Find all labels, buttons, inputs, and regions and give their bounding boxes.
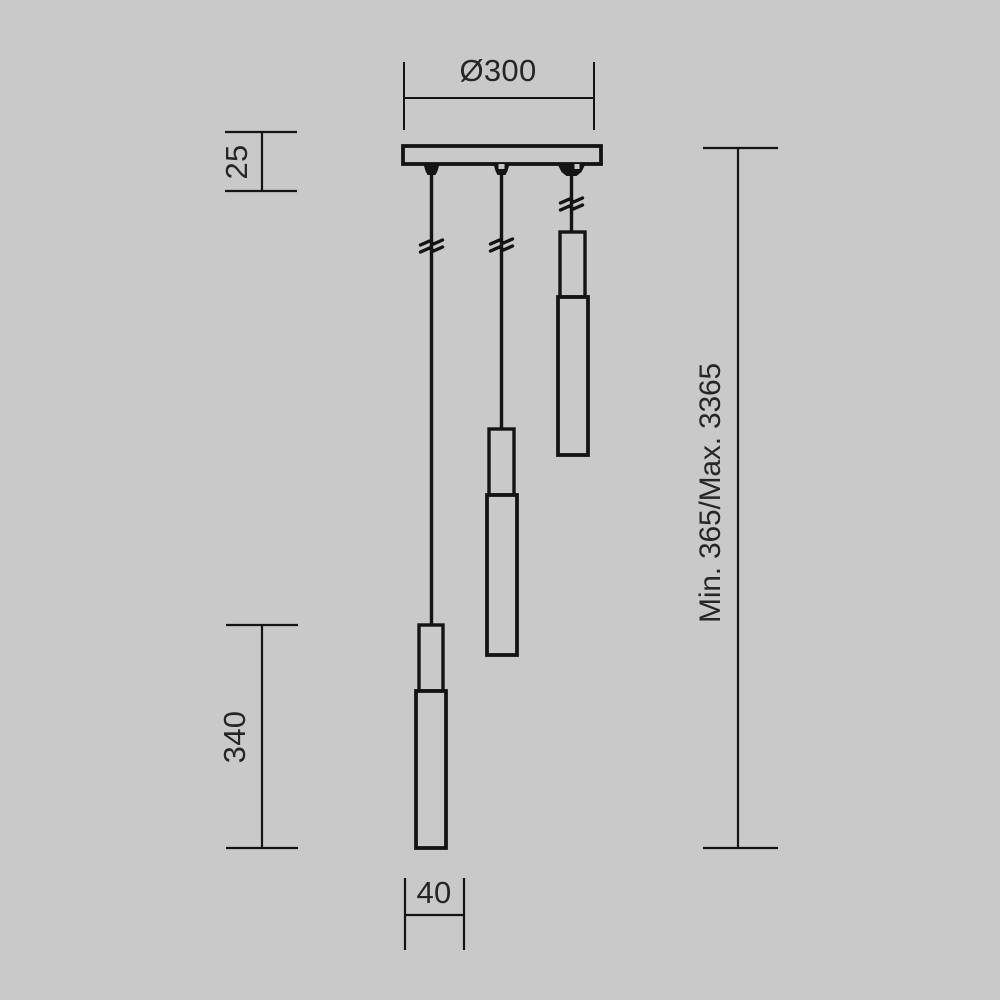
gland-notch <box>575 164 580 169</box>
canopy-diameter-label: Ø300 <box>459 53 536 88</box>
pendant-upper-cylinder <box>489 429 514 495</box>
gland-notch <box>499 164 505 169</box>
pendant-assembly-right <box>558 163 589 455</box>
pendant-assembly-middle <box>487 163 517 655</box>
dimension-height-range: Min. 365/Max. 3365 <box>694 148 778 848</box>
pendant-lower-cylinder <box>558 297 588 455</box>
cable-gland <box>558 164 586 176</box>
height-range-label: Min. 365/Max. 3365 <box>694 363 727 623</box>
pendant-lower-cylinder <box>416 691 446 848</box>
dimension-pendant-length: 340 <box>217 625 298 848</box>
cable-break-mark <box>561 205 583 210</box>
cable-break-mark <box>491 246 513 251</box>
pendant-width-label: 40 <box>416 875 451 910</box>
pendant-lower-cylinder <box>487 495 517 655</box>
cable-break-mark <box>421 247 443 252</box>
cable-gland <box>424 164 440 175</box>
pendant-upper-cylinder <box>560 232 585 297</box>
dimension-canopy-thickness: 25 <box>219 132 297 191</box>
pendant-length-label: 340 <box>217 711 252 764</box>
dimension-canopy-diameter: Ø300 <box>404 53 594 130</box>
dimension-pendant-width: 40 <box>405 875 464 950</box>
pendant-assembly-left <box>416 163 446 848</box>
cable-break-mark <box>491 239 513 244</box>
canopy-thickness-label: 25 <box>219 144 254 179</box>
cable-break-mark <box>561 198 583 203</box>
diagram-canvas: Ø300 25 340 Min. 365/Max. 3365 40 <box>0 0 1000 1000</box>
ceiling-canopy <box>403 146 601 164</box>
cable-break-mark <box>421 240 443 245</box>
pendant-upper-cylinder <box>419 625 443 691</box>
pendants-group <box>416 163 588 848</box>
pendant-light-dimension-drawing: Ø300 25 340 Min. 365/Max. 3365 40 <box>0 0 1000 1000</box>
